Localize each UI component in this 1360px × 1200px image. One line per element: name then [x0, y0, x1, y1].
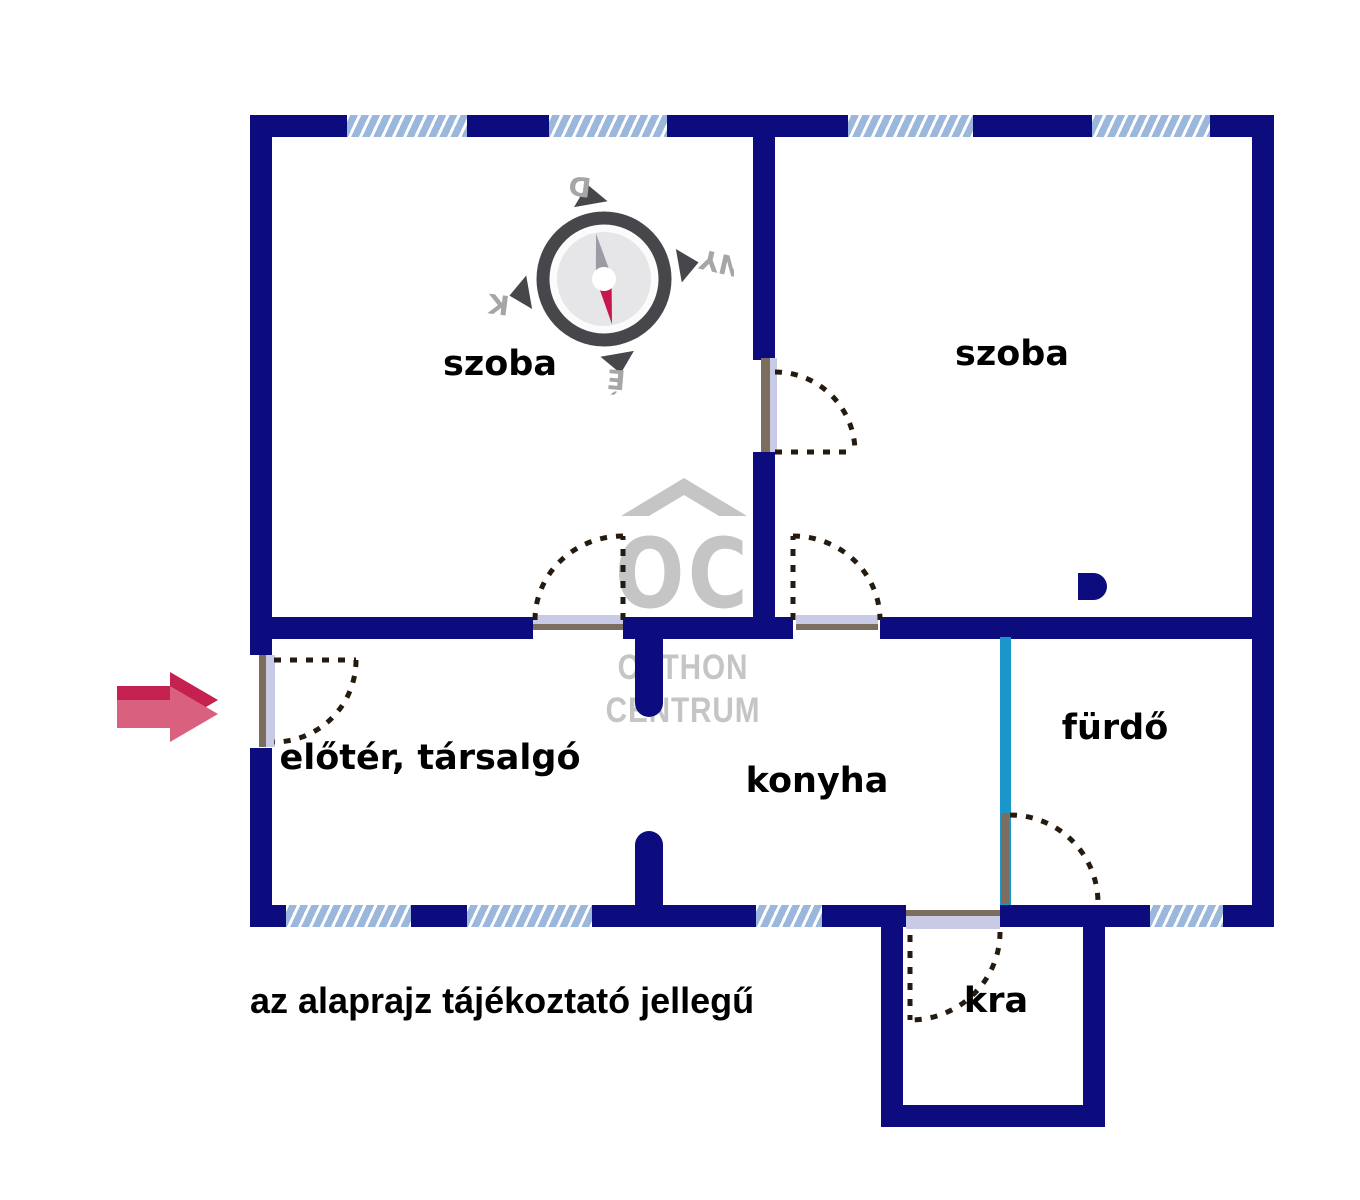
room-label-szoba-left: szoba — [443, 344, 557, 384]
hall-room1-door-swing-arc — [535, 536, 623, 620]
room-label-konyha: konyha — [746, 761, 889, 801]
entrance-arrow-icon — [110, 665, 225, 750]
room-label-eloter: előtér, társalgó — [279, 738, 580, 778]
compass-point-east — [676, 246, 702, 283]
entrance-door-swing-arc — [274, 660, 356, 742]
disclaimer-text: az alaprajz tájékoztató jellegű — [250, 980, 754, 1022]
compass-label-ny: NY — [697, 242, 734, 282]
floor-plan: OC OTTHON CENTRUM — [0, 0, 1360, 1200]
compass-label-e: É — [606, 362, 627, 395]
bathroom-door-swing-arc — [1010, 815, 1098, 903]
room1-room2-door-swing-arc — [775, 372, 855, 452]
room-label-szoba-right: szoba — [955, 334, 1069, 374]
room-label-kamra: kra — [964, 981, 1028, 1021]
kitchen-room2-door-swing-arc — [793, 536, 880, 620]
compass-label-d: D — [567, 169, 593, 203]
room-label-furdo: fürdő — [1062, 708, 1169, 748]
compass-label-k: K — [486, 287, 512, 320]
